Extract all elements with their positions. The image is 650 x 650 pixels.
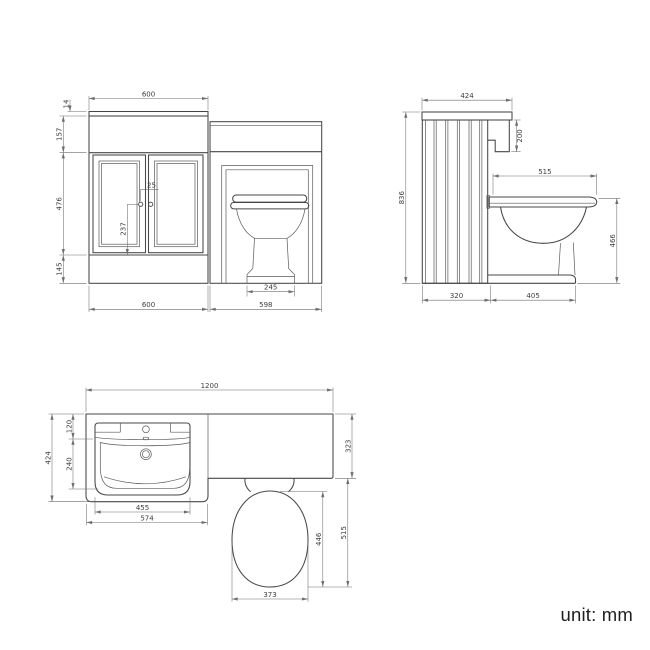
side-worktop xyxy=(422,112,512,120)
dim-plan-worktop-depth: 323 xyxy=(344,440,352,453)
front-dimensions: 600 14 157 476 145 25 237 245 600 598 xyxy=(56,90,322,312)
toilet-seat-front xyxy=(231,203,309,209)
side-cabinet-panel xyxy=(422,120,487,283)
tap-hole xyxy=(143,426,150,433)
toilet-seat-plan xyxy=(232,491,308,587)
dim-side-worktop-depth: 424 xyxy=(460,92,474,100)
dim-front-vanity-width: 600 xyxy=(142,301,155,309)
dim-plan-bowl-width: 455 xyxy=(136,504,149,512)
dim-front-handle-offset: 25 xyxy=(147,182,156,190)
basin-outline-plan xyxy=(95,423,190,495)
panel-grooves xyxy=(434,120,482,283)
dim-plan-overall-width: 1200 xyxy=(201,382,219,390)
toilet-side xyxy=(487,196,597,284)
toilet-plan xyxy=(232,478,308,587)
technical-drawing-page: 600 14 157 476 145 25 237 245 600 598 xyxy=(0,0,650,650)
dim-plan-basin-width: 574 xyxy=(140,514,154,522)
dim-front-top-width: 600 xyxy=(142,90,155,98)
front-worktop-slab xyxy=(89,112,208,117)
front-door-left xyxy=(93,155,146,253)
dim-front-handle-position: 237 xyxy=(120,222,128,235)
dim-side-seat-depth: 515 xyxy=(538,168,551,176)
bathroom-unit-drawing: 600 14 157 476 145 25 237 245 600 598 xyxy=(0,0,650,650)
dim-plan-bowl-depth: 240 xyxy=(65,457,73,470)
dim-plan-vanity-depth: 424 xyxy=(44,451,52,465)
basin-bowl-plan xyxy=(100,443,189,489)
dim-front-worktop-thickness: 14 xyxy=(62,99,70,108)
dim-plan-toilet-projection: 515 xyxy=(340,526,348,539)
dim-side-overall-height: 836 xyxy=(398,190,406,204)
plan-dimensions: 1200 424 120 240 323 515 446 455 574 373 xyxy=(44,382,356,602)
toilet-base-side xyxy=(488,275,576,283)
toilet-front xyxy=(231,195,309,283)
dim-side-toilet-projection: 405 xyxy=(526,292,539,300)
dim-side-cabinet-depth: 320 xyxy=(450,292,463,300)
dim-front-pedestal-width: 245 xyxy=(264,284,277,292)
dim-front-upstand-height: 157 xyxy=(56,128,64,141)
unit-label: unit: mm xyxy=(543,604,633,626)
dim-plan-seat-length: 446 xyxy=(315,532,323,546)
toilet-bowl-front xyxy=(237,209,306,238)
dim-side-seat-height: 466 xyxy=(609,234,617,248)
dim-plan-deck-depth: 120 xyxy=(65,420,73,433)
side-basin-profile xyxy=(488,120,510,152)
door-handle-left xyxy=(139,202,143,206)
basin-plan xyxy=(95,423,190,495)
plan-view: 1200 424 120 240 323 515 446 455 574 373 xyxy=(44,382,356,602)
wc-recess-frame xyxy=(222,166,313,284)
toilet-lid-front xyxy=(233,195,307,202)
dim-front-wc-width: 598 xyxy=(259,301,272,309)
dim-front-door-height: 476 xyxy=(56,197,64,211)
toilet-seat-side xyxy=(489,197,597,207)
dim-plan-seat-width: 373 xyxy=(263,591,276,599)
dim-side-basin-drop: 200 xyxy=(516,129,524,142)
side-view: 424 200 836 515 466 320 405 xyxy=(398,92,620,303)
front-view: 600 14 157 476 145 25 237 245 600 598 xyxy=(56,90,322,312)
toilet-bowl-side xyxy=(501,207,587,243)
dim-front-plinth-height: 145 xyxy=(56,262,64,275)
door-handle-right xyxy=(149,202,153,206)
